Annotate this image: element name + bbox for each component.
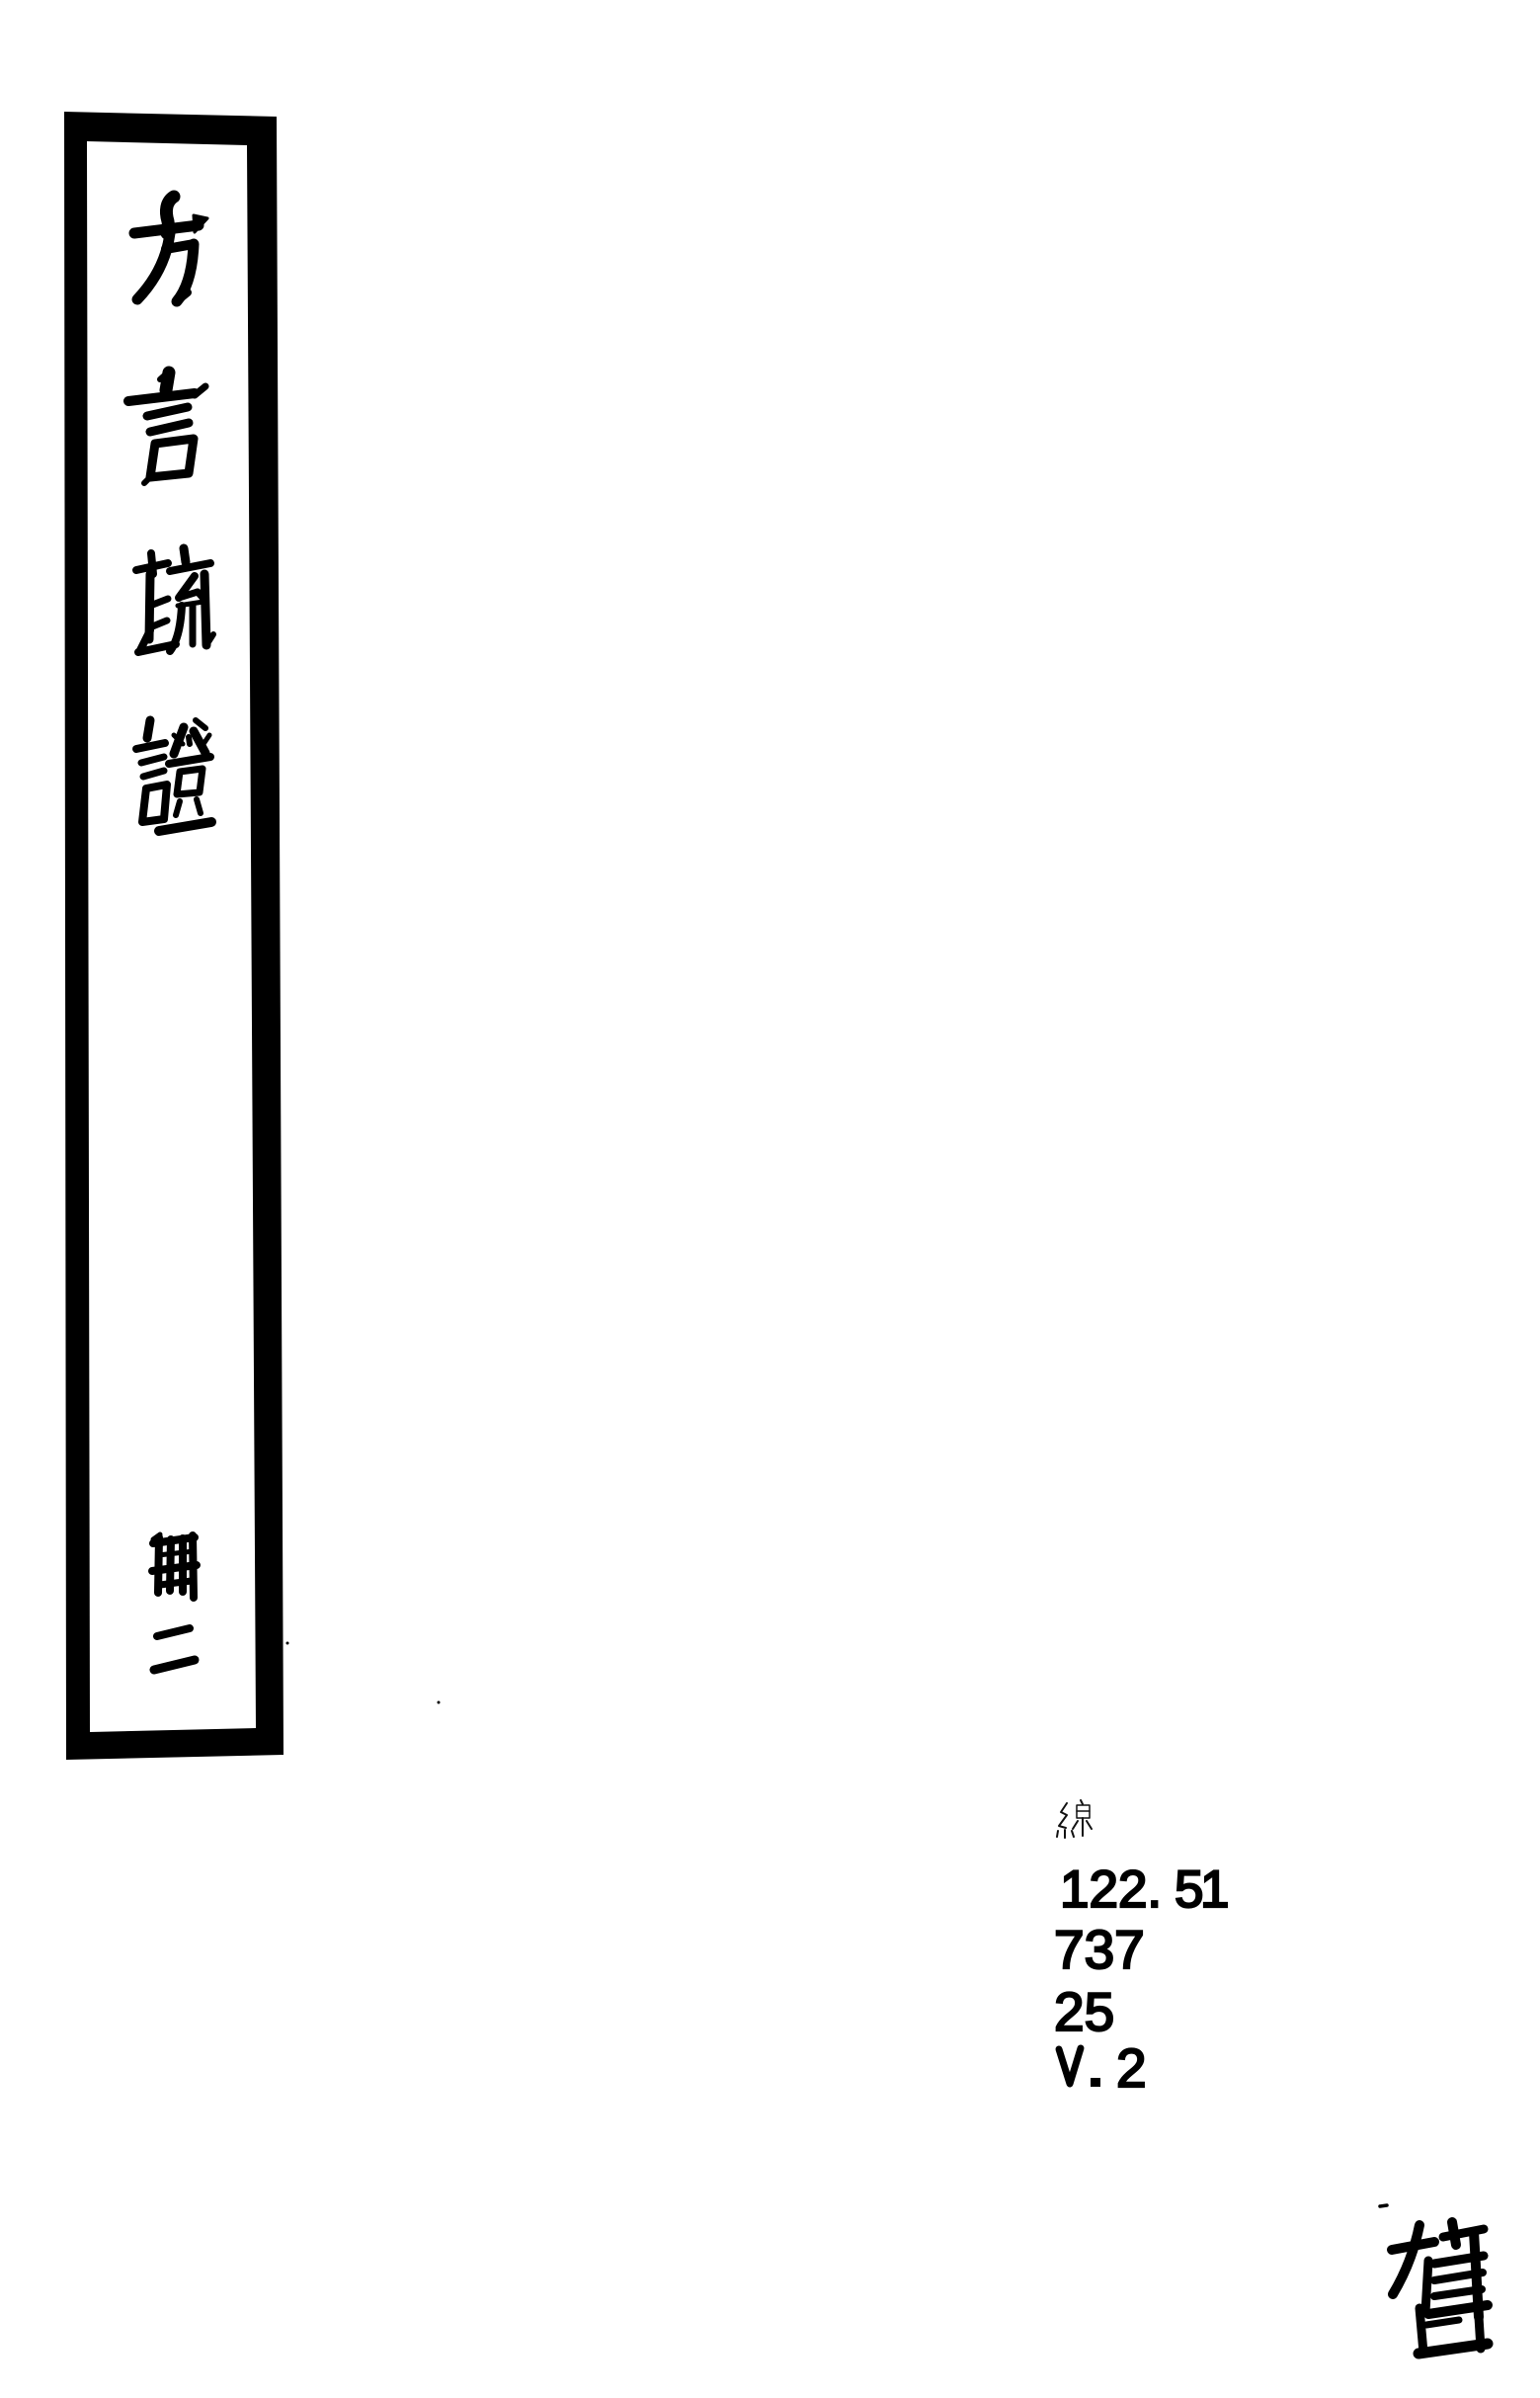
svg-text:2: 2 bbox=[1116, 2037, 1147, 2099]
svg-text:737: 737 bbox=[1054, 1919, 1145, 1980]
svg-text:122.: 122. bbox=[1060, 1861, 1162, 1919]
svg-text:1: 1 bbox=[1200, 1861, 1229, 1919]
svg-text:25: 25 bbox=[1054, 1981, 1114, 2042]
